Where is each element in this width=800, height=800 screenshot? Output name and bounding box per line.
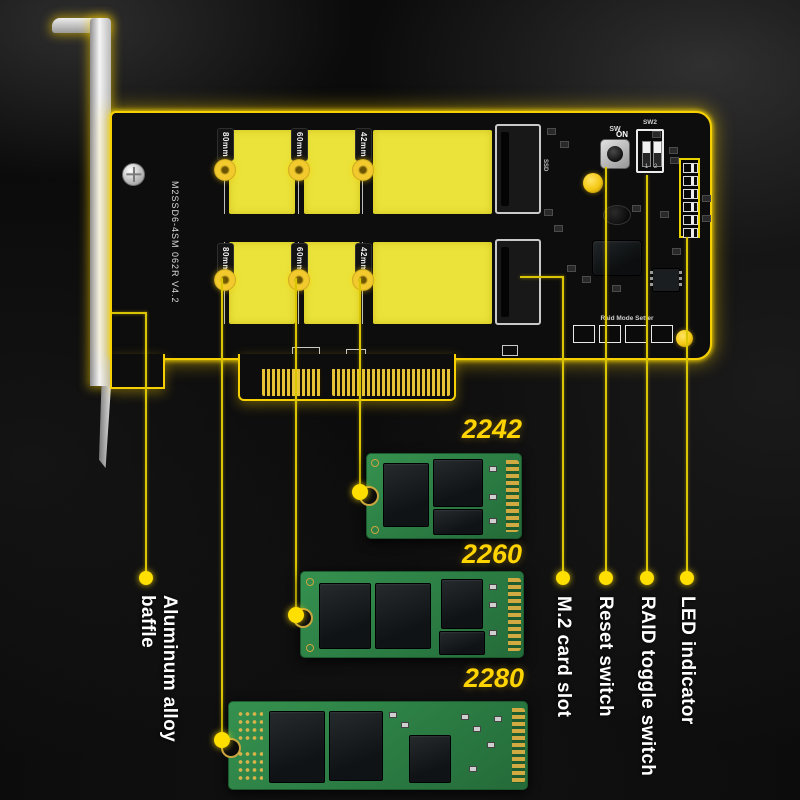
smd-component [494, 716, 502, 722]
label-raid-toggle-switch: RAID toggle switch [636, 596, 658, 776]
smd-component [489, 584, 497, 590]
pcb-lower-left-tab [110, 354, 165, 389]
controller-chip [441, 579, 483, 629]
callout-line-baffle [145, 312, 147, 574]
controller-chip [592, 240, 642, 276]
smd-component [489, 602, 497, 608]
pcie-gold-fingers-short [262, 369, 322, 396]
length-tag-80mm: 80mm [217, 128, 234, 161]
callout-line-slot-h [520, 276, 564, 278]
dip-silkscreen-sw2: SW2 [636, 119, 664, 126]
ssd-standoff [214, 159, 236, 181]
dip-numbers: 1 2 [638, 164, 666, 170]
ssd-screw-hole [306, 644, 314, 652]
nand-chip [383, 463, 429, 527]
smd-component [473, 726, 481, 732]
slot-silkscreen-ssd: SSD [542, 159, 548, 171]
smd-component [461, 714, 469, 720]
ssd-2280 [228, 701, 528, 790]
led [683, 189, 698, 199]
length-tag-42mm: 42mm [355, 128, 372, 161]
smd-component [469, 766, 477, 772]
callout-line-led [686, 237, 688, 573]
led [683, 202, 698, 212]
bracket-screw-top [122, 163, 145, 186]
length-tag-60mm: 60mm [291, 128, 308, 161]
smd-component [567, 265, 576, 272]
callout-dot-2280 [214, 732, 230, 748]
ssd-2242 [366, 453, 522, 539]
callout-dot-2260 [288, 607, 304, 623]
label-reset-switch: Reset switch [594, 596, 616, 717]
label-m2-card-slot: M.2 card slot [552, 596, 574, 717]
smd-component [554, 225, 563, 232]
callout-dot-led [680, 571, 694, 585]
callout-dot-raid [640, 571, 654, 585]
smd-component [489, 630, 497, 636]
smd-component [702, 215, 711, 222]
ssd-standoff [352, 159, 374, 181]
smd-component [489, 466, 497, 472]
controller-chip [409, 735, 451, 783]
ssd-screw-hole [306, 578, 314, 586]
nand-chip [375, 583, 431, 649]
silkscreen-outline [502, 345, 518, 356]
smd-component [544, 209, 553, 216]
adapter-card-pcb: M2SSD6-4SM 062R V4.2 80mm 60mm 42mm 80mm… [110, 111, 712, 360]
capacitor [603, 205, 631, 225]
label-aluminum-alloy-baffle: Aluminum alloy baffle [136, 595, 180, 800]
jumper-block [625, 325, 647, 343]
jumper-block [651, 325, 673, 343]
callout-line-baffle-h [112, 312, 147, 314]
led [683, 176, 698, 186]
pcie-edge-connector [238, 354, 456, 401]
callout-dot-reset [599, 571, 613, 585]
thermal-pad [229, 242, 295, 324]
smd-component [652, 131, 661, 138]
smd-component [669, 147, 678, 154]
led [683, 215, 698, 225]
label-led-indicator: LED indicator [676, 596, 698, 725]
nand-chip [439, 631, 485, 655]
thermal-pad [373, 242, 492, 324]
eeprom-chip [652, 268, 680, 292]
ssd-screw-hole [371, 459, 379, 467]
smd-component [702, 195, 711, 202]
ssd-size-2242: 2242 [410, 414, 522, 445]
smd-component [489, 518, 497, 524]
ssd-standoff [352, 269, 374, 291]
jumper-block [599, 325, 621, 343]
smd-component [612, 285, 621, 292]
callout-dot-baffle [139, 571, 153, 585]
smd-component [582, 276, 591, 283]
solder-pad-grid [237, 750, 263, 780]
smd-component [389, 712, 397, 718]
smd-component [670, 157, 679, 164]
callout-dot-slot [556, 571, 570, 585]
pcie-gold-fingers-long [332, 369, 450, 396]
thermal-pad [229, 130, 295, 214]
callout-line-42mm [359, 278, 361, 488]
nand-chip [329, 711, 383, 781]
ssd-size-2260: 2260 [410, 539, 522, 570]
raid-mode-header-row [573, 325, 677, 345]
mounting-hole [676, 330, 693, 347]
callout-line-slot [562, 276, 564, 573]
nand-chip [433, 459, 483, 507]
bracket-tail [99, 386, 111, 468]
ssd-2260 [300, 571, 524, 658]
smd-component [547, 128, 556, 135]
raid-mode-setter-label: Raid Mode Setter [567, 315, 687, 322]
ssd-edge-connector [512, 708, 525, 783]
led [683, 163, 698, 173]
ssd-screw-hole [371, 526, 379, 534]
jumper-block [573, 325, 595, 343]
ssd-size-2280: 2280 [412, 663, 524, 694]
reset-button [600, 139, 630, 169]
smd-component [487, 742, 495, 748]
ssd-edge-connector [508, 578, 521, 651]
ssd-standoff [288, 269, 310, 291]
thermal-pad [373, 130, 492, 214]
ssd-standoff [214, 269, 236, 291]
smd-component [401, 722, 409, 728]
callout-dot-2242 [352, 484, 368, 500]
m2-slot-2 [495, 239, 541, 325]
m2-slot-1 [495, 124, 541, 214]
smd-component [660, 211, 669, 218]
smd-component [632, 205, 641, 212]
ssd-edge-connector [506, 460, 519, 532]
smd-component [672, 248, 681, 255]
callout-line-raid [646, 175, 648, 573]
led-indicator-block [679, 158, 700, 238]
card-model-text: M2SSD6-4SM 062R V4.2 [170, 181, 180, 331]
smd-component [489, 494, 497, 500]
solder-pad-grid [237, 710, 263, 740]
nand-chip [319, 583, 371, 649]
product-showcase: M2SSD6-4SM 062R V4.2 80mm 60mm 42mm 80mm… [0, 0, 800, 800]
nand-chip [433, 509, 483, 535]
smd-component [560, 141, 569, 148]
mounting-hole [583, 173, 603, 193]
ssd-standoff [288, 159, 310, 181]
aluminum-baffle-bracket [90, 18, 111, 386]
nand-chip [269, 711, 325, 783]
callout-line-80mm [221, 278, 223, 736]
callout-line-reset [605, 167, 607, 573]
callout-line-60mm [295, 278, 297, 611]
dip-on-label: ON [616, 130, 628, 139]
